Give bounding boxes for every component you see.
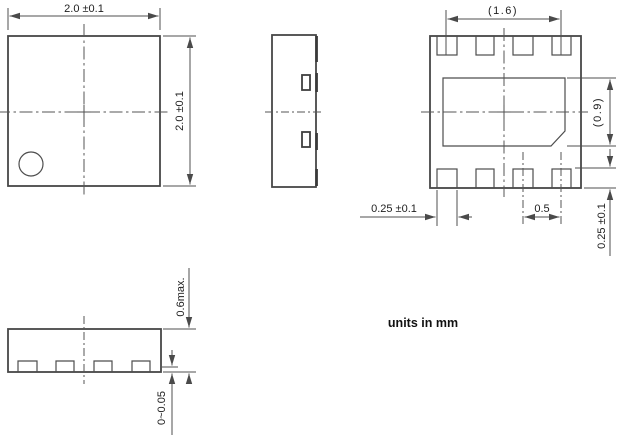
dim-label-max-height: 0.6max. [175, 277, 187, 316]
dim-label-pad-span: (1.6) [488, 5, 518, 17]
dim-label-top-width: 2.0 ±0.1 [64, 3, 104, 15]
side-terminal-mark [302, 132, 310, 147]
lead-bump [56, 361, 74, 372]
lead-bump [132, 361, 150, 372]
dim-label-epad-height: (0.9) [592, 97, 604, 127]
terminal-pad [513, 36, 533, 55]
center-cross [77, 105, 91, 119]
side-view [265, 35, 323, 187]
dim-standoff: 0~0.05 [156, 350, 178, 435]
dim-label-pad-length: 0.25 ±0.1 [596, 203, 608, 249]
terminal-pad [476, 169, 494, 188]
package-body-side [272, 35, 316, 187]
dim-top-height: 2.0 ±0.1 [163, 36, 196, 186]
dim-label-top-height: 2.0 ±0.1 [174, 91, 186, 131]
center-cross [497, 105, 511, 119]
lead-bump [94, 361, 112, 372]
terminal-pad [437, 169, 457, 188]
extension-lines [437, 190, 457, 226]
dim-label-standoff: 0~0.05 [156, 391, 168, 425]
dim-label-pad-pitch: 0.5 [534, 203, 549, 215]
package-outline-drawing: 2.0 ±0.1 2.0 ±0.1 [0, 0, 620, 438]
terminal-pad [476, 36, 494, 55]
bottom-view-centerlines [421, 28, 588, 226]
drawing-canvas: 2.0 ±0.1 2.0 ±0.1 [0, 0, 620, 438]
extension-lines [163, 329, 196, 372]
bottom-view: (1.6) (0.9) 0.25 ±0.1 0.25 ±0.1 0.5 [360, 5, 616, 256]
dim-pad-pitch: 0.5 [525, 203, 560, 217]
side-terminal-mark [302, 75, 310, 90]
dim-label-pad-width: 0.25 ±0.1 [371, 203, 417, 215]
top-view-centerlines [0, 24, 170, 198]
pin1-marker [19, 152, 43, 176]
terminal-pad [437, 36, 457, 55]
units-note: units in mm [388, 316, 458, 330]
dim-pad-width: 0.25 ±0.1 [360, 190, 472, 226]
top-view: 2.0 ±0.1 2.0 ±0.1 [0, 3, 196, 198]
lead-bump [18, 361, 37, 372]
front-view: 0.6max. 0~0.05 [8, 268, 196, 435]
